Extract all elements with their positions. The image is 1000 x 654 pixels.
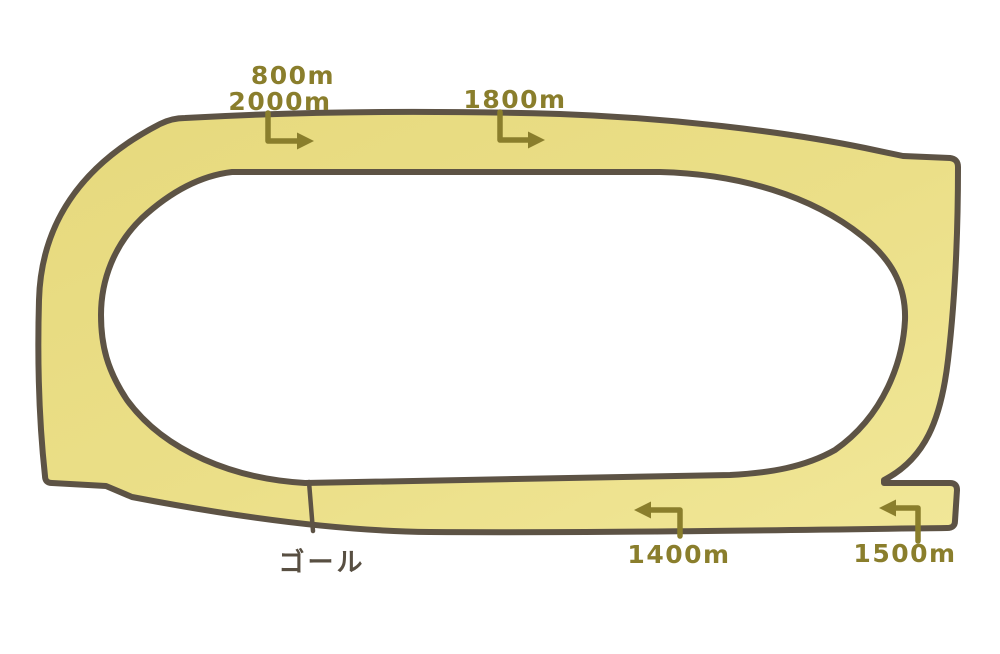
racetrack-diagram: 800m 2000m 1800m 1400m 1500m ゴール bbox=[0, 0, 1000, 650]
goal-label: ゴール bbox=[278, 547, 365, 578]
marker-2000-label: 2000m bbox=[228, 87, 331, 116]
marker-1500-label: 1500m bbox=[853, 539, 956, 568]
track-ring bbox=[38, 112, 958, 532]
marker-1400-label: 1400m bbox=[627, 540, 730, 569]
marker-1800-label: 1800m bbox=[463, 85, 566, 114]
marker-800-label: 800m bbox=[251, 61, 335, 90]
racetrack-svg: 800m 2000m 1800m 1400m 1500m ゴール bbox=[0, 0, 1000, 650]
